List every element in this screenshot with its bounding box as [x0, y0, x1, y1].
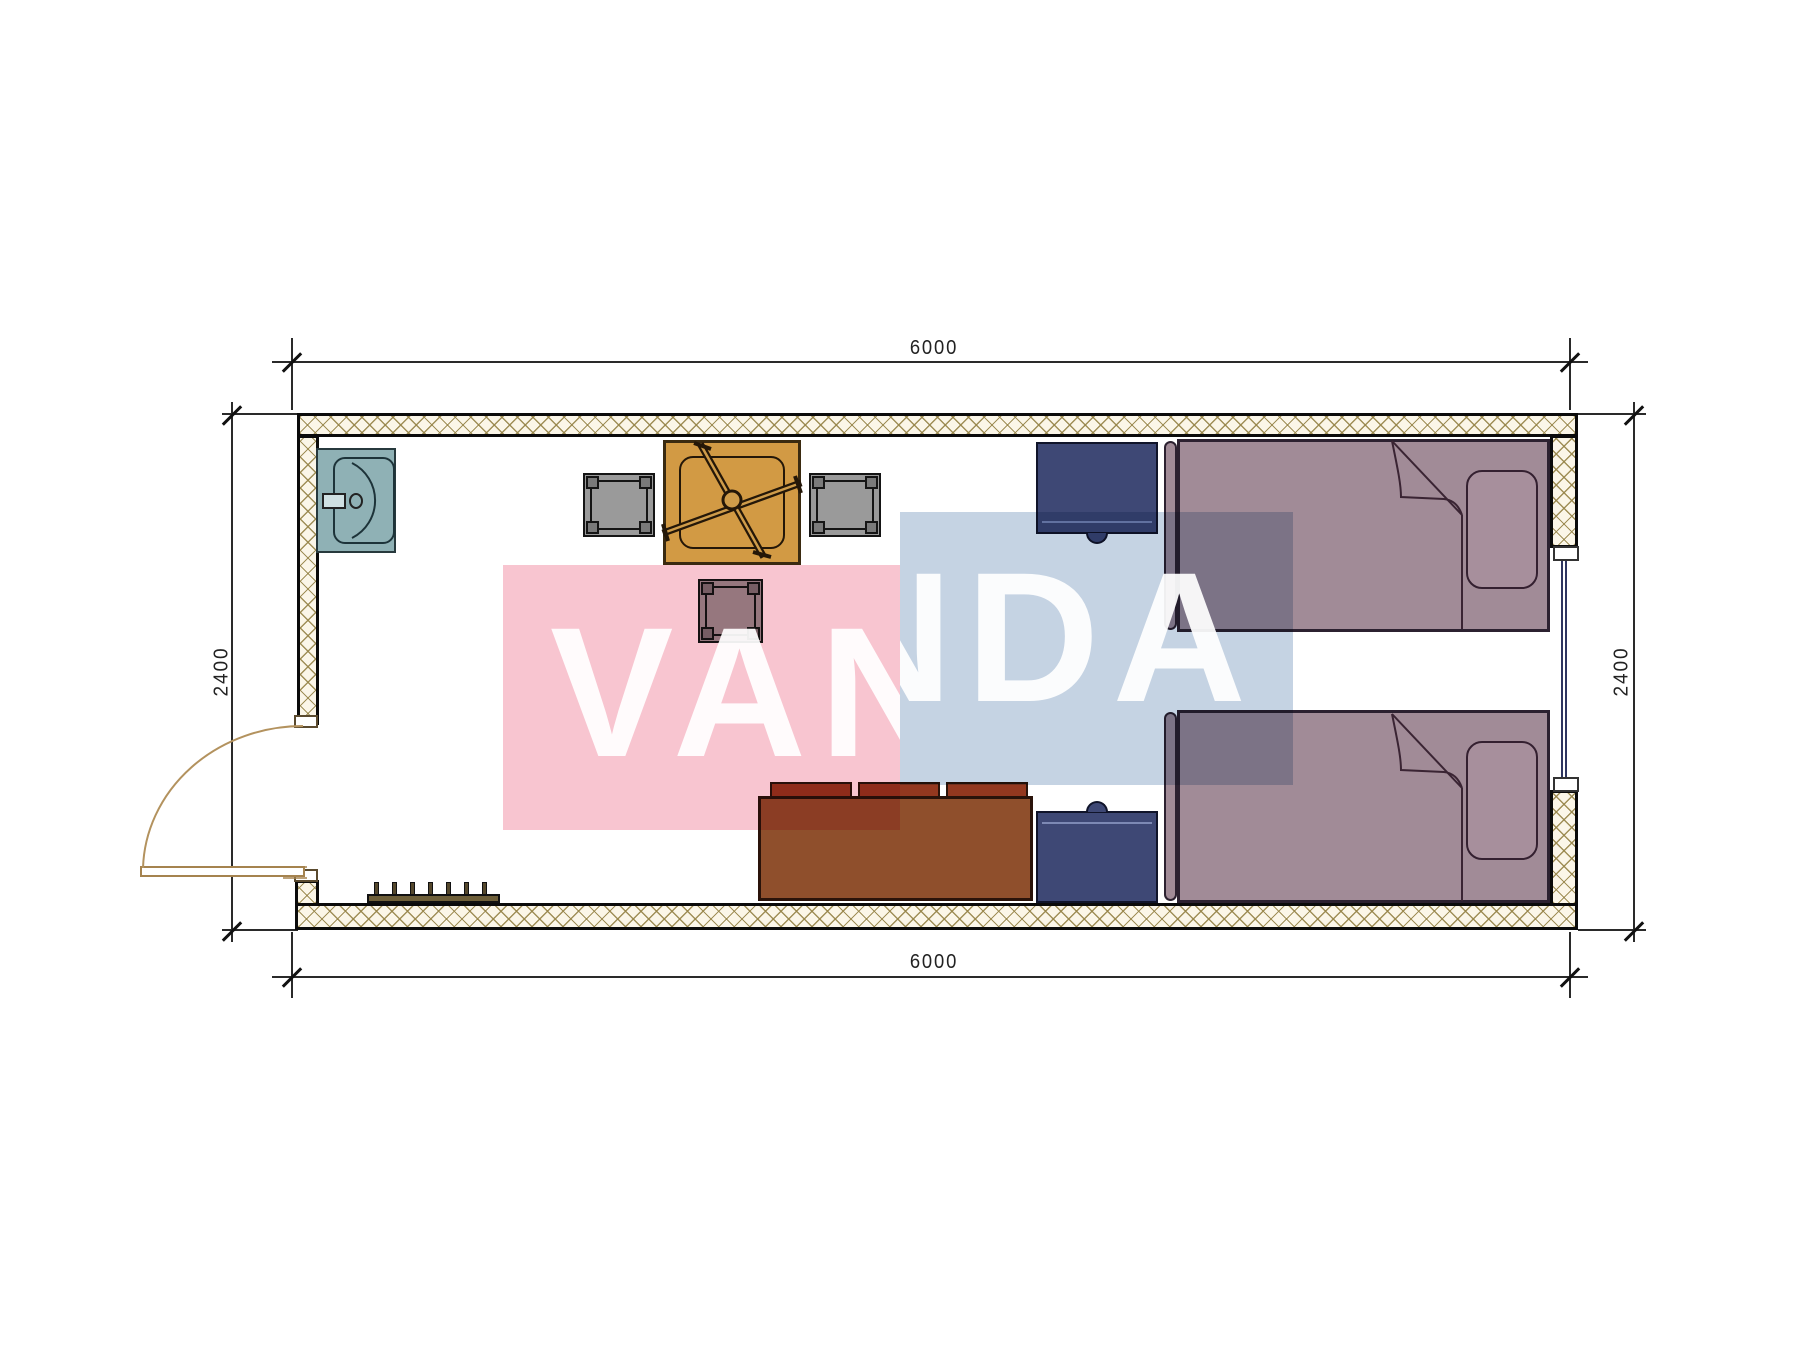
bottom-ext-right [1569, 932, 1571, 998]
bed-pillow-bottom [1466, 741, 1538, 860]
nightstand-bottom [1036, 811, 1158, 903]
window-glass [1561, 560, 1567, 778]
bed-pillow-top [1466, 470, 1538, 589]
chair-left [583, 473, 655, 537]
door-swing-arc [143, 726, 303, 868]
chair-leg [639, 476, 652, 489]
chair-leg [586, 521, 599, 534]
watermark-word: VANDA [550, 601, 900, 786]
wall-bottom [295, 903, 1578, 930]
sink [316, 448, 396, 553]
chair-leg [812, 521, 825, 534]
radiator [367, 894, 500, 903]
window-frame-bottom [1553, 777, 1579, 792]
bottom-ext-left [291, 932, 293, 998]
bottom-dimension-label: 6000 [897, 951, 971, 974]
watermark-text-blue-clip: VANDA [900, 512, 1293, 785]
nightstand-front-line [1042, 822, 1152, 824]
top-dimension-line [272, 361, 1588, 363]
left-dimension-label: 2400 [211, 634, 234, 710]
wall-right-upper [1550, 435, 1578, 548]
chair-leg [865, 521, 878, 534]
watermark-word: VANDA [900, 546, 1259, 731]
chair-leg [812, 476, 825, 489]
bottom-dimension-line [272, 976, 1588, 978]
chair-right [809, 473, 881, 537]
watermark-text-pink-clip: VANDA [503, 565, 900, 830]
wall-door-stub [295, 880, 319, 906]
right-dimension-label: 2400 [1611, 634, 1634, 710]
door-leaf [140, 866, 305, 877]
nightstand-knob [1086, 801, 1108, 812]
chair-leg [639, 521, 652, 534]
door-jamb-top [294, 715, 318, 728]
chair-leg [586, 476, 599, 489]
dining-table [663, 440, 801, 565]
chair-leg [865, 476, 878, 489]
floor-plan-canvas: 6000 6000 2400 2400 [0, 0, 1800, 1350]
top-ext-right [1569, 338, 1571, 410]
top-ext-left [291, 338, 293, 410]
wall-top [297, 413, 1578, 437]
wall-right-lower [1550, 790, 1578, 906]
window-frame-top [1553, 546, 1579, 561]
top-dimension-label: 6000 [897, 337, 971, 360]
